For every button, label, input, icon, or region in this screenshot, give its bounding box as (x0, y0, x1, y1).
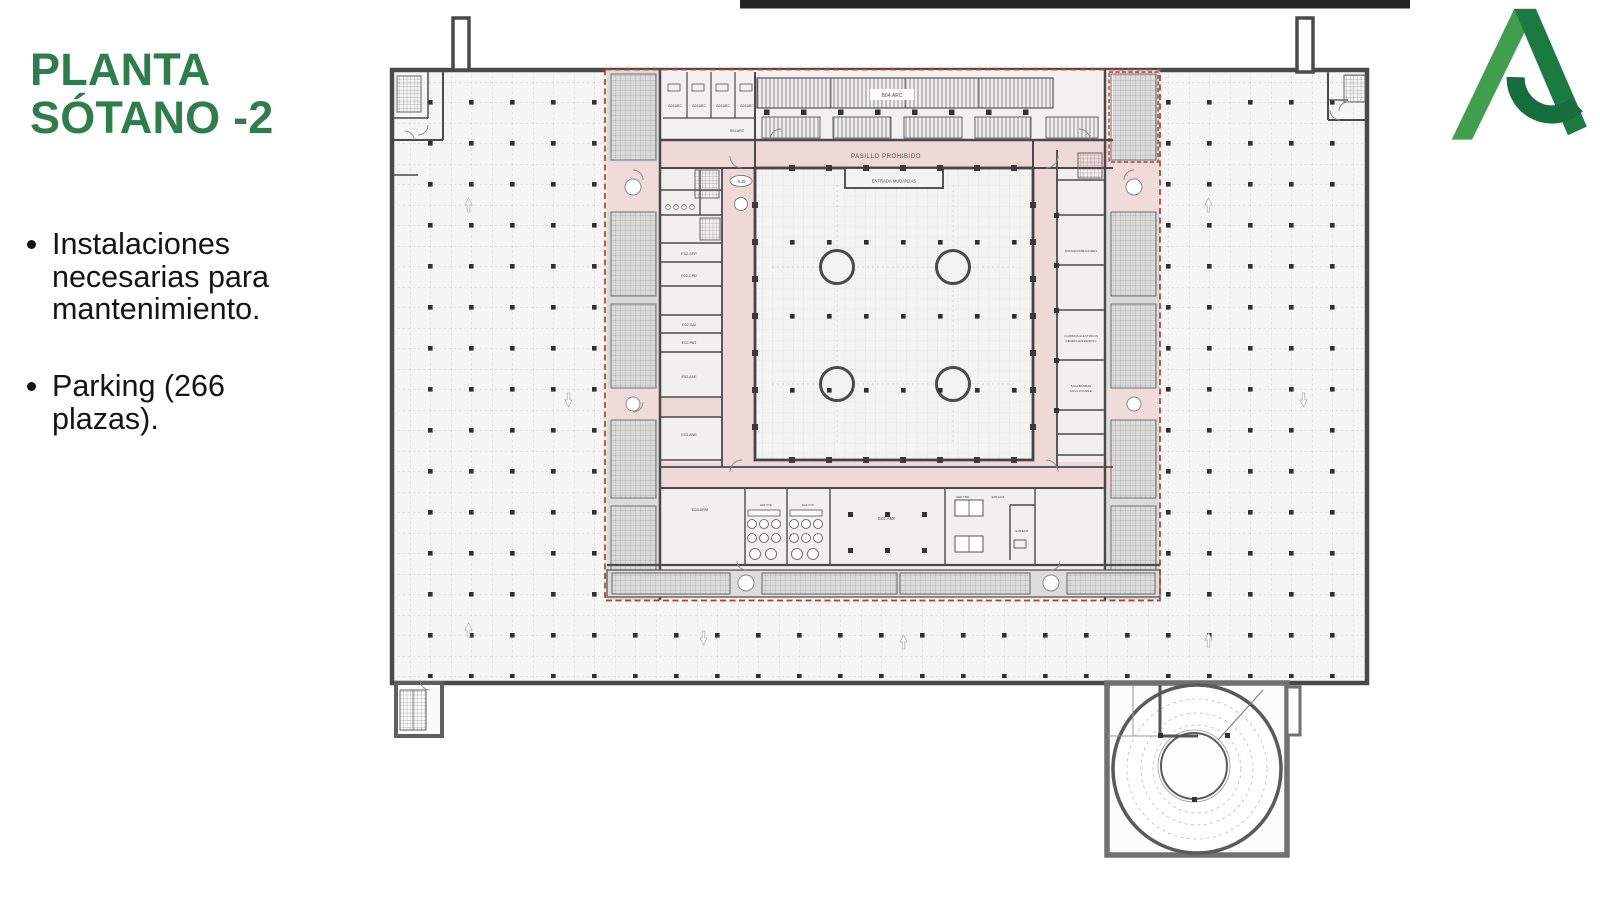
bullet-item-instalaciones: Instalaciones necesarias para mantenimie… (52, 228, 322, 326)
room-label: E02.AMF (878, 516, 896, 521)
structural-column-circle (821, 251, 854, 284)
title-line-1: PLANTA (30, 46, 370, 94)
room-label: E02.PAT (682, 341, 697, 345)
room-label: GENERALES EDIFICIO (1065, 339, 1097, 343)
archive-lower-label: B04.ARC (730, 129, 745, 133)
top-wall-bar (740, 0, 1410, 9)
room-label: E03.ANE (681, 433, 697, 437)
elevator-hatch (700, 218, 720, 240)
archive-room-label: B04.ARC (668, 104, 682, 108)
bullet-item-parking: Parking (266 plazas). (52, 370, 322, 435)
room-label: E02.VTE (760, 503, 772, 507)
archive-room-label: B04.ARC (692, 104, 706, 108)
spiral-ramp (1107, 683, 1300, 855)
stair-hatch (1344, 75, 1365, 102)
archive-main-label: B04.ARC (882, 93, 903, 99)
stair-hatch (1078, 153, 1102, 178)
vent-shafts-left (611, 74, 656, 594)
structural-column-circle (937, 368, 970, 401)
stair-pod-bottom-left (396, 680, 442, 736)
room-label: E02.SAI (682, 323, 696, 327)
room-label: E03.ARM (692, 508, 708, 512)
slide-text-column: PLANTA SÓTANO -2 (30, 46, 370, 141)
room-label: E02.VTP (802, 503, 814, 507)
page-title: PLANTA SÓTANO -2 (30, 46, 370, 141)
bullet-list: Instalaciones necesarias para mantenimie… (22, 228, 322, 479)
vent-shafts-right (1109, 72, 1158, 594)
stair-hatch (695, 170, 719, 198)
corridor-label: PASILLO PROHIBIDO (851, 154, 921, 160)
junta-de-andalucia-logo (1446, 6, 1594, 144)
louver-strip (607, 570, 1160, 597)
room-label: SALA BOMBAS (1071, 384, 1091, 388)
slide: PASILLO PROHIBIDO ENTRADA MUDANZAS -8.35… (0, 0, 1600, 900)
room-label: E02.CPD (681, 274, 697, 278)
room-label: TRANSFORMADORES (1065, 249, 1098, 253)
room-label: AGUA POTABLE (1070, 389, 1092, 393)
central-hall (730, 165, 1036, 463)
structural-column-circle (821, 368, 854, 401)
detail-marker-circle (735, 198, 748, 211)
entrance-label: ENTRADA MUDANZAS (872, 179, 917, 184)
archive-room-label: B04.ARC (716, 104, 730, 108)
room-label: E00.TME (957, 495, 970, 499)
title-line-2: SÓTANO -2 (30, 94, 370, 142)
archive-room-label: B04.ARC (740, 104, 754, 108)
room-label: E00.ACS (992, 495, 1005, 499)
structural-column-circle (937, 251, 970, 284)
room-label: E02.SPP (681, 252, 697, 256)
level-marker-label: -8.35 (736, 179, 746, 184)
stair-hatch (397, 76, 421, 112)
room-label: E00.EMT (1016, 529, 1029, 533)
room-label: CUADROS ELECTRICOS (1064, 334, 1098, 338)
room-label: E02.ALE (682, 375, 697, 379)
